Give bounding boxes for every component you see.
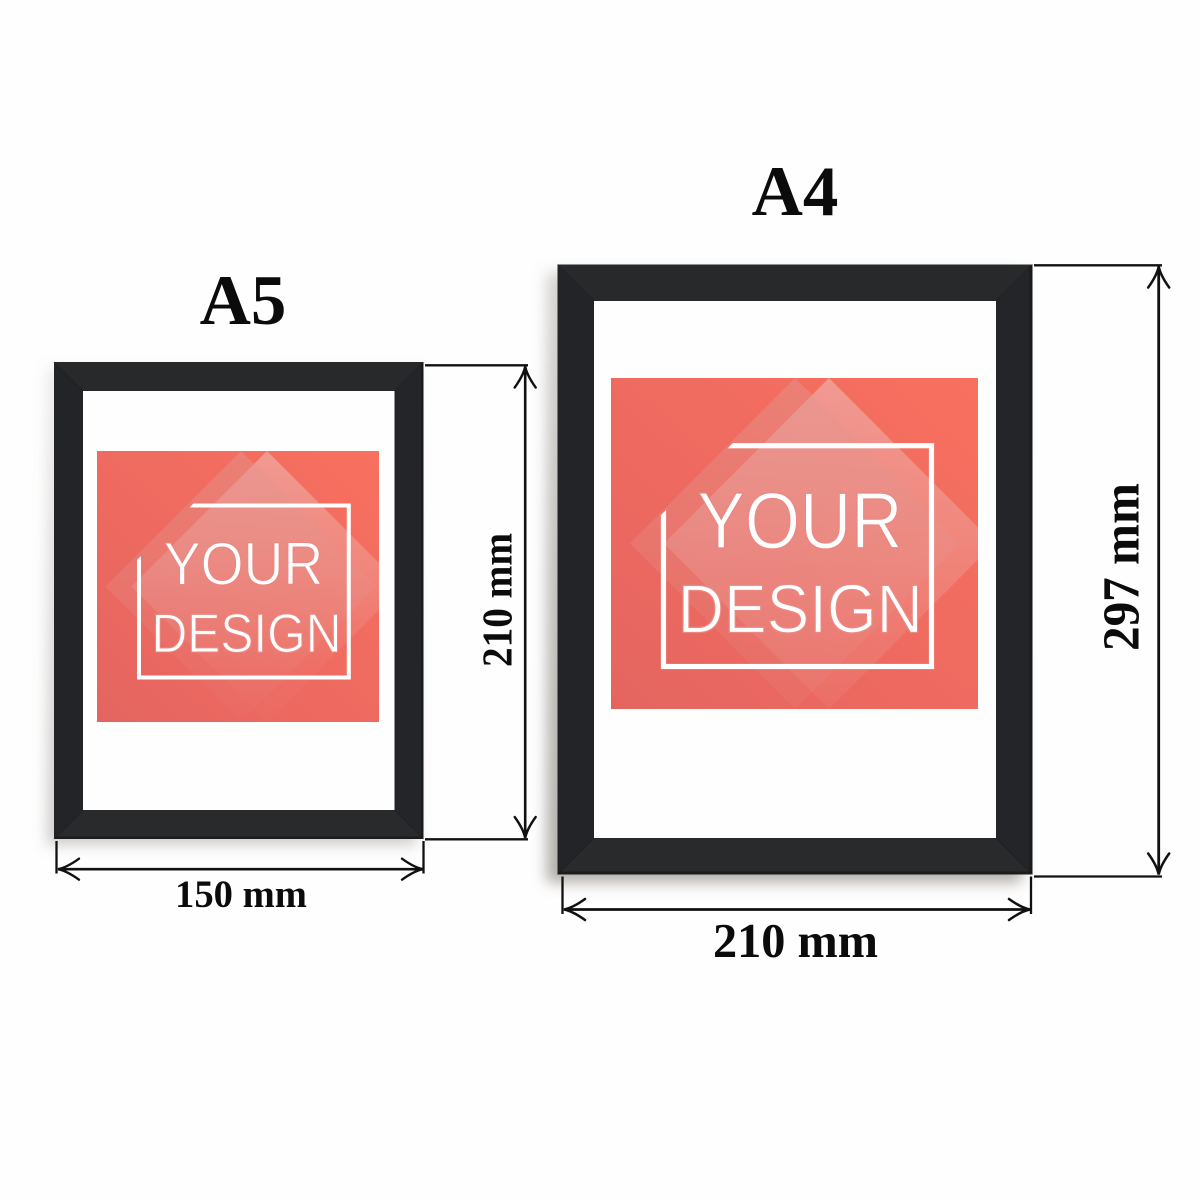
svg-text:YOUR: YOUR xyxy=(164,529,324,597)
svg-text:DESIGN: DESIGN xyxy=(678,569,923,647)
svg-text:210 mm: 210 mm xyxy=(476,533,522,667)
svg-text:DESIGN: DESIGN xyxy=(152,603,342,664)
svg-text:150 mm: 150 mm xyxy=(175,872,307,916)
svg-text:A4: A4 xyxy=(752,153,839,231)
svg-text:YOUR: YOUR xyxy=(698,476,903,565)
svg-text:A5: A5 xyxy=(200,262,287,340)
svg-text:297 mm: 297 mm xyxy=(1094,483,1151,651)
svg-text:210 mm: 210 mm xyxy=(713,915,878,968)
